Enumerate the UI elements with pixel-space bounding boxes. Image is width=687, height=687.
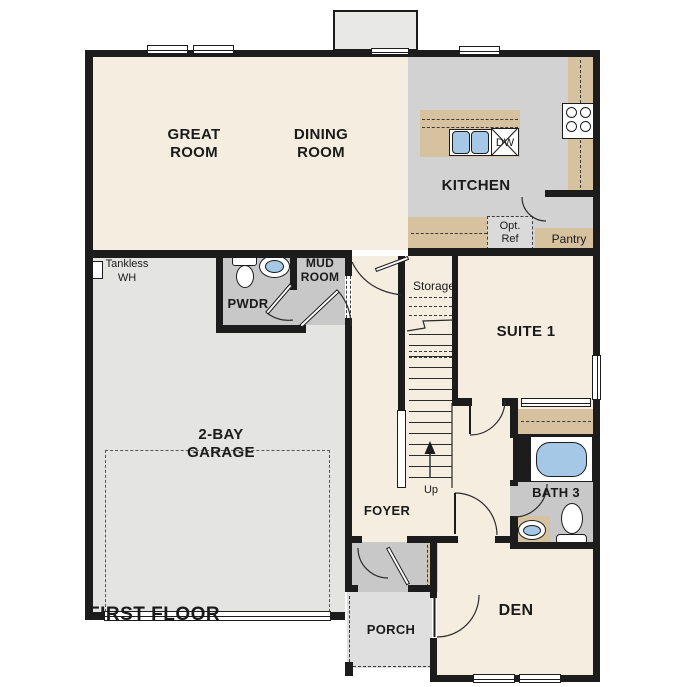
room-label-porch: PORCH (341, 622, 441, 638)
stair-tread (409, 400, 452, 401)
wall (408, 585, 437, 592)
mudroom-opening-dash (346, 276, 347, 318)
mudroom-opening-dash (350, 276, 351, 318)
wall (216, 325, 306, 333)
stair-tread (409, 389, 452, 390)
closet-sliding-door (521, 398, 591, 407)
stair-tread (409, 411, 452, 412)
room-label-pwdr: PWDR (198, 296, 298, 312)
label-pantry: Pantry (524, 232, 614, 246)
stair-tread (409, 477, 452, 478)
room-label-suite1: SUITE 1 (466, 323, 586, 341)
room-label-garage: 2-BAY GARAGE (166, 426, 276, 462)
room-label-den: DEN (456, 601, 576, 620)
bottom-counter-dashed-line (411, 233, 487, 234)
wall (513, 436, 530, 482)
sink-bowl (452, 131, 470, 154)
stair-tread (409, 378, 452, 379)
wall (345, 318, 352, 592)
bath3-sink-bowl (523, 525, 541, 536)
label-up: Up (401, 484, 461, 497)
porch-edge-dash (353, 666, 431, 667)
label-dw: DW (491, 137, 519, 150)
stair-tread (409, 345, 452, 346)
stair-dashed-tread (409, 315, 452, 316)
closet-rod-dashed-line (521, 421, 591, 422)
label-tankless-wh: Tankless WH (101, 257, 153, 286)
burner-icon (566, 121, 577, 132)
wall (85, 50, 93, 620)
burner-icon (580, 121, 591, 132)
pwdr-sink-bowl (265, 260, 284, 273)
stair-tread (409, 367, 452, 368)
fireplace-bumpout (333, 10, 418, 51)
stair-handrail (397, 410, 406, 488)
sink-bowl (471, 131, 489, 154)
wall (345, 585, 358, 592)
stair-tread (409, 455, 452, 456)
wall (510, 398, 518, 438)
floor-plan: Opt. Ref (0, 0, 687, 687)
room-label-foyer: FOYER (337, 503, 437, 519)
burner-icon (566, 107, 577, 118)
wall (345, 536, 362, 543)
stair-tread (409, 433, 452, 434)
garage-apron-dashed (105, 450, 330, 612)
room-label-bath3: BATH 3 (506, 485, 606, 501)
window (193, 45, 234, 54)
stair-tread (409, 334, 452, 335)
window (147, 45, 188, 54)
room-label-great-room: GREAT ROOM (154, 126, 234, 162)
wall (510, 542, 600, 549)
stair-dashed-tread (409, 306, 452, 307)
wall (452, 398, 472, 406)
pwdr-toilet-bowl (236, 265, 254, 288)
opt-ref-label: Opt. Ref (494, 220, 526, 246)
wall (495, 536, 518, 543)
wall (545, 190, 593, 197)
window (473, 674, 515, 683)
window (592, 355, 601, 400)
burner-icon (580, 107, 591, 118)
window (459, 46, 500, 55)
room-label-mud-room: MUD ROOM (294, 256, 346, 285)
window (519, 674, 561, 683)
island-dashed-line (422, 119, 518, 120)
label-storage: Storage (384, 279, 484, 293)
wall (408, 248, 593, 256)
room-label-kitchen: KITCHEN (416, 177, 536, 195)
toilet-bowl-icon (561, 503, 583, 534)
wall (430, 675, 600, 682)
stair-dashed-overlay (409, 357, 452, 358)
bathtub (536, 442, 587, 477)
wall (216, 250, 223, 333)
stair-dashed-overlay (409, 351, 452, 352)
stair-tread (409, 444, 452, 445)
stair-dashed-tread (409, 297, 452, 298)
window (371, 48, 409, 55)
stair-tread (409, 466, 452, 467)
room-label-dining-room: DINING ROOM (281, 126, 361, 162)
wall (345, 662, 353, 676)
wall (345, 250, 352, 276)
floor-title: FIRST FLOOR (88, 604, 338, 627)
stair-tread (409, 422, 452, 423)
